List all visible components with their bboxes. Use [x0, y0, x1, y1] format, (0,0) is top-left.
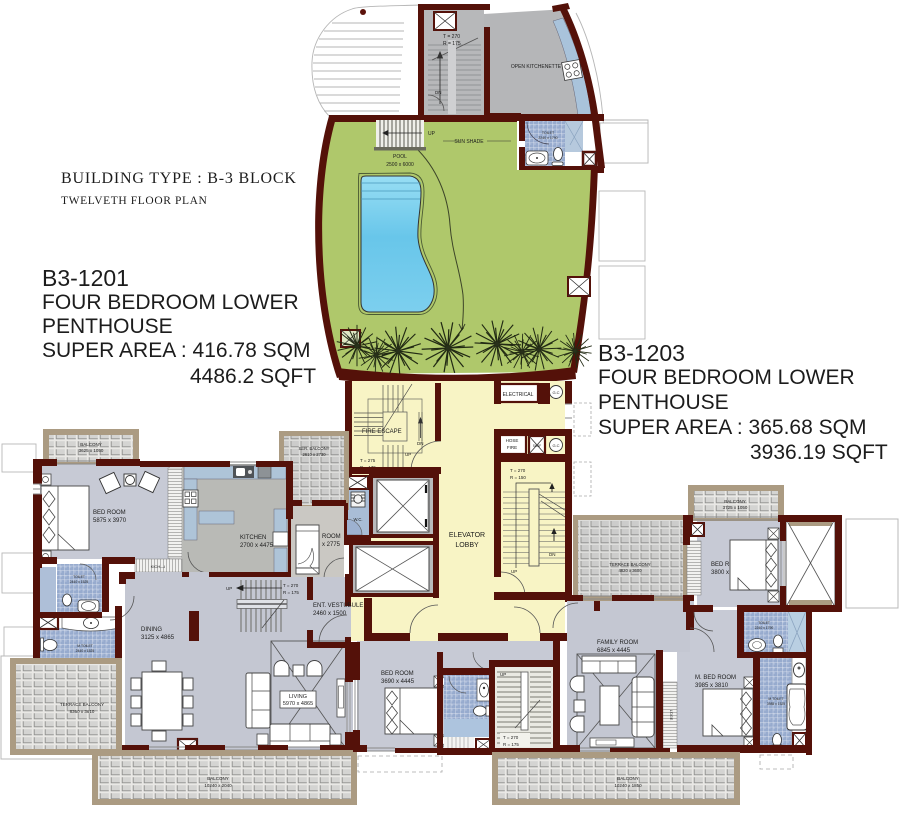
- svg-text:POOL: POOL: [393, 154, 407, 160]
- svg-text:TOILET: TOILET: [542, 131, 555, 135]
- svg-text:ELEVATOR: ELEVATOR: [449, 532, 485, 539]
- svg-text:BALCONY: BALCONY: [724, 499, 746, 504]
- svg-text:M.TOILET: M.TOILET: [77, 644, 93, 648]
- svg-text:ELECTRICAL: ELECTRICAL: [503, 392, 534, 398]
- svg-text:2440 x 1525: 2440 x 1525: [76, 649, 95, 653]
- svg-text:FOUR BEDROOM LOWER: FOUR BEDROOM LOWER: [598, 366, 855, 389]
- svg-text:UP: UP: [226, 586, 232, 591]
- svg-text:G.C: G.C: [552, 443, 559, 448]
- svg-text:BUILDING TYPE : B-3 BLOCK: BUILDING TYPE : B-3 BLOCK: [61, 170, 297, 187]
- svg-text:BALCONY: BALCONY: [80, 442, 102, 447]
- svg-text:4486.2 SQFT: 4486.2 SQFT: [190, 365, 316, 388]
- svg-text:UP: UP: [511, 569, 517, 574]
- svg-text:2240 x 1790: 2240 x 1790: [755, 626, 774, 630]
- svg-text:3725 x 1050: 3725 x 1050: [723, 505, 748, 510]
- svg-text:8360 x 3610: 8360 x 3610: [70, 709, 95, 714]
- svg-text:LOBBY: LOBBY: [455, 542, 479, 549]
- svg-text:UP: UP: [405, 452, 411, 457]
- svg-text:DN: DN: [417, 441, 424, 446]
- svg-text:3125 x 4865: 3125 x 4865: [141, 635, 175, 641]
- svg-text:PENTHOUSE: PENTHOUSE: [42, 315, 173, 338]
- svg-text:SUN SHADE: SUN SHADE: [454, 139, 484, 145]
- svg-text:DINING: DINING: [141, 627, 162, 633]
- svg-text:SUPER AREA : 416.78 SQM: SUPER AREA : 416.78 SQM: [42, 339, 310, 362]
- svg-text:BALCONY: BALCONY: [617, 776, 639, 781]
- svg-text:3985 x 3810: 3985 x 3810: [695, 683, 729, 689]
- svg-text:TERRACE BALCONY: TERRACE BALCONY: [60, 702, 104, 707]
- svg-text:R = 175: R = 175: [283, 590, 299, 595]
- svg-text:TOILET: TOILET: [73, 575, 85, 579]
- svg-text:ROOM: ROOM: [322, 534, 341, 540]
- svg-text:T = 275: T = 275: [360, 458, 376, 463]
- svg-text:PENTHOUSE: PENTHOUSE: [598, 391, 729, 414]
- svg-text:2700 x 4475: 2700 x 4475: [240, 543, 274, 549]
- svg-text:5970 x 4865: 5970 x 4865: [283, 701, 313, 707]
- svg-text:G.C: G.C: [552, 390, 559, 395]
- svg-text:R = 150: R = 150: [510, 475, 526, 480]
- svg-text:R = 175: R = 175: [503, 742, 519, 747]
- svg-text:T = 270: T = 270: [510, 468, 526, 473]
- svg-text:SUPER AREA : 365.68 SQM: SUPER AREA : 365.68 SQM: [598, 416, 866, 439]
- svg-text:M. BED ROOM: M. BED ROOM: [695, 675, 736, 681]
- svg-text:M.TOILET: M.TOILET: [768, 697, 783, 701]
- svg-text:T = 270: T = 270: [443, 34, 460, 40]
- svg-text:10240 x 1850: 10240 x 1850: [614, 783, 642, 788]
- svg-text:2610 x 2730: 2610 x 2730: [302, 452, 326, 457]
- svg-text:FIRE: FIRE: [507, 445, 517, 450]
- svg-text:OPEN KITCHENETTE: OPEN KITCHENETTE: [511, 64, 562, 70]
- svg-text:BALCONY: BALCONY: [207, 776, 229, 781]
- svg-text:x 2775: x 2775: [322, 542, 341, 548]
- svg-text:L'DGE: L'DGE: [669, 710, 673, 721]
- svg-text:KITCHEN: KITCHEN: [240, 535, 266, 541]
- svg-text:TWELVETH FLOOR PLAN: TWELVETH FLOOR PLAN: [61, 195, 208, 207]
- svg-text:4820 x 3600: 4820 x 3600: [618, 568, 642, 573]
- svg-text:DN: DN: [549, 552, 556, 557]
- svg-text:3985 x 1525: 3985 x 1525: [767, 702, 785, 706]
- svg-text:3625 x 1050: 3625 x 1050: [79, 448, 104, 453]
- svg-text:2240 x 1790: 2240 x 1790: [538, 136, 557, 140]
- svg-text:SHAF: SHAF: [533, 444, 542, 448]
- svg-text:T = 270: T = 270: [503, 735, 519, 740]
- svg-text:ENT. VESTUBULE: ENT. VESTUBULE: [313, 603, 363, 609]
- svg-text:2500 x 6000: 2500 x 6000: [386, 162, 414, 168]
- svg-text:B3-1203: B3-1203: [598, 340, 685, 366]
- svg-text:FIRE ESCAPE: FIRE ESCAPE: [362, 429, 402, 435]
- svg-text:T = 270: T = 270: [283, 583, 299, 588]
- svg-text:TOILET: TOILET: [758, 621, 770, 625]
- svg-text:BED ROOM: BED ROOM: [381, 671, 414, 677]
- svg-text:W.C.: W.C.: [353, 517, 362, 522]
- svg-text:LIVING: LIVING: [289, 694, 307, 700]
- svg-text:KICH—I: KICH—I: [151, 564, 166, 569]
- svg-text:10240 x 2040: 10240 x 2040: [204, 783, 232, 788]
- svg-text:R = 175: R = 175: [443, 41, 461, 47]
- svg-text:6845 x 4445: 6845 x 4445: [597, 648, 631, 654]
- svg-text:BED ROOM: BED ROOM: [93, 510, 126, 516]
- svg-text:2460 x 1500: 2460 x 1500: [313, 611, 347, 617]
- svg-text:DN: DN: [435, 90, 442, 95]
- svg-text:UP: UP: [500, 672, 506, 677]
- svg-text:B3-1201: B3-1201: [42, 265, 129, 291]
- svg-text:UP: UP: [428, 131, 436, 137]
- svg-text:5875 x 3970: 5875 x 3970: [93, 518, 127, 524]
- svg-text:3936.19 SQFT: 3936.19 SQFT: [750, 441, 888, 464]
- svg-text:FAMILY ROOM: FAMILY ROOM: [597, 640, 638, 646]
- svg-text:3690 x 4445: 3690 x 4445: [381, 679, 415, 685]
- svg-text:TERRACE BALCONY: TERRACE BALCONY: [609, 562, 650, 567]
- svg-text:2440 x 1525: 2440 x 1525: [70, 580, 89, 584]
- svg-text:SER. BALCONY: SER. BALCONY: [299, 446, 330, 451]
- svg-text:FOUR BEDROOM LOWER: FOUR BEDROOM LOWER: [42, 291, 299, 314]
- svg-text:HOSE: HOSE: [506, 438, 519, 443]
